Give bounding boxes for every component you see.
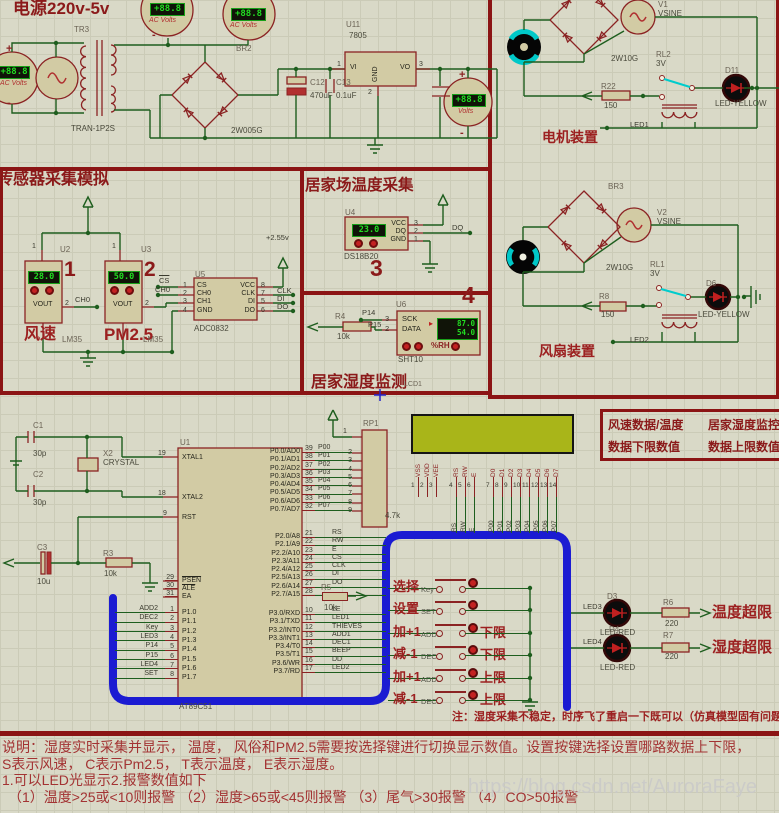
pin-number: 8 xyxy=(344,499,352,507)
pin-number: 12 xyxy=(305,624,313,631)
pin-name: P0.5/AD5 xyxy=(232,489,300,496)
pin-name: P0.6/AD6 xyxy=(232,498,300,505)
alarm-caption-humidity: 湿度超限 xyxy=(712,640,772,655)
pin-number: 34 xyxy=(305,486,313,493)
cap-ref: C2 xyxy=(33,471,43,479)
temp-title: 居家场温度采集 xyxy=(305,178,414,194)
pin-number: 15 xyxy=(305,648,313,655)
push-button-row[interactable]: 减-1 DEC1 下限 xyxy=(390,642,550,664)
pin-number: 1 xyxy=(112,243,116,250)
resistor-ref: R22 xyxy=(601,83,616,91)
resistor-value: 10k xyxy=(337,333,350,341)
pin-number: 1 xyxy=(343,428,347,435)
mcu-pin-row: P2.7/A15 28 xyxy=(232,592,402,600)
net-label: P15 xyxy=(124,652,158,659)
plus-sign: + xyxy=(459,70,465,81)
pin-name: ALE xyxy=(182,585,195,592)
pin-name: P3.0/RXD xyxy=(232,610,300,617)
pin-name: VSS xyxy=(415,454,422,477)
pin-name: P3.6/WR xyxy=(232,660,300,667)
pin-name: D4 xyxy=(526,454,533,477)
pin-number: 38 xyxy=(305,453,313,460)
cap-value: 30p xyxy=(33,450,46,458)
note-line-1: 说明：湿度实时采集并显示， 温度， 风俗和PM2.5需要按选择键进行切换显示数值… xyxy=(2,740,750,754)
fan-caption: 风扇装置 xyxy=(539,344,595,358)
vref-label: +2.55v xyxy=(266,234,289,242)
pin-name: P0.4/AD4 xyxy=(232,481,300,488)
adc-part: ADC0832 xyxy=(194,325,229,333)
pin-name: P3.5/T1 xyxy=(232,651,300,658)
pin-name: P3.7/RD xyxy=(232,668,300,675)
net-label: ADD1 xyxy=(332,631,351,638)
button-terminal xyxy=(459,675,466,682)
voltmeter-display: +88.8 xyxy=(231,8,266,21)
resistor-ref: R6 xyxy=(663,599,673,607)
humidity-top-reading: 87.0 xyxy=(438,319,475,328)
pin-name-vi: VI xyxy=(350,64,357,71)
relay-switches xyxy=(657,76,695,308)
source-value: VSINE xyxy=(658,10,682,18)
net-label: DD xyxy=(332,656,342,663)
pin-name: D0 xyxy=(490,454,497,477)
limit-label: 上限 xyxy=(480,689,506,708)
pin-name: RW xyxy=(462,454,469,477)
minus-sign: - xyxy=(152,30,156,41)
pin-name: P2.2/A10 xyxy=(232,550,300,557)
led-ref: D4 xyxy=(609,626,619,634)
adc-ref: U5 xyxy=(195,271,205,279)
relay-value: 3V xyxy=(656,60,666,68)
led-ref: D3 xyxy=(607,593,617,601)
net-label: P03 xyxy=(515,498,522,532)
pin-name: CH0 xyxy=(197,290,211,297)
button-actuator[interactable] xyxy=(468,645,478,655)
pin-name: VCC xyxy=(386,220,406,227)
transformer xyxy=(81,40,116,116)
pin-name: GND xyxy=(386,236,406,243)
mcu-p1-pins: ADD2 1 P1.0 DEC2 2 P1.1 Key 3 P1.2 LED3 … xyxy=(88,609,198,684)
cap-ref: C12 xyxy=(310,79,325,87)
pin-number: 14 xyxy=(305,640,313,647)
pin-number: 19 xyxy=(158,450,166,457)
relay-ref: RL1 xyxy=(650,261,665,269)
pin-number: 21 xyxy=(305,530,313,537)
push-button-row[interactable]: 加+1 ADD1 下限 xyxy=(390,620,550,642)
mcu-pin-row: 29 PSEN xyxy=(88,577,198,585)
button-plate xyxy=(435,669,466,671)
button-terminal xyxy=(436,608,443,615)
minus-sign: - xyxy=(460,128,464,139)
pin-name: P1.0 xyxy=(182,609,196,616)
mcu-pin-row: P3.7/RD 17 LED2 xyxy=(232,669,402,677)
button-terminal xyxy=(459,653,466,660)
button-label: 加+1 xyxy=(393,621,421,640)
net-label-p15: P15 xyxy=(368,321,381,329)
pin-name: P0.1/AD1 xyxy=(232,456,300,463)
sht10-ref: U6 xyxy=(396,301,406,309)
pin-number: 33 xyxy=(305,495,313,502)
pin-number: 32 xyxy=(305,503,313,510)
pin-number: 13 xyxy=(305,632,313,639)
increment-knob[interactable] xyxy=(354,239,363,248)
net-label: LED3 xyxy=(124,633,158,640)
bridge-value: 2W10G xyxy=(611,55,638,63)
pin-number: 26 xyxy=(305,571,313,578)
power-title: 电源220v-5v xyxy=(13,0,109,17)
push-button-row[interactable]: 减-1 DEC2 上限 xyxy=(390,687,550,709)
button-terminal xyxy=(436,586,443,593)
keypad: 选择 Key 设置 SET 加+1 ADD1 下限 减-1 DEC1 下限 加+… xyxy=(390,575,550,709)
pin-name: P3.4/T0 xyxy=(232,643,300,650)
led-value: LED-YELLOW xyxy=(715,100,767,108)
rh-unit-label: %RH xyxy=(431,342,450,350)
lcd-data-pins: D0 7 P00 D1 8 P01 D2 9 P02 D3 10 P03 D4 … xyxy=(489,453,561,533)
pin-name: P3.2/INT0 xyxy=(232,627,300,634)
pin-number: 7 xyxy=(160,662,174,669)
pin-name: CS xyxy=(197,282,207,289)
led-ref: D11 xyxy=(725,67,739,75)
pin-name: D2 xyxy=(508,454,515,477)
lcd-pin: VEE 3 xyxy=(432,453,441,533)
push-button-row[interactable]: 设置 SET xyxy=(390,597,550,619)
net-label: DEC2 xyxy=(124,614,158,621)
sht10-display: 87.0 54.0 xyxy=(437,318,478,340)
ds18b20-ref: U4 xyxy=(345,209,355,217)
pin-number: 17 xyxy=(305,665,313,672)
mcu-ref: U1 xyxy=(180,439,190,447)
mcu-control-pins: 29 PSEN 30 ALE 31 EA xyxy=(88,577,198,601)
pin-number: 23 xyxy=(305,547,313,554)
pin-name: P1.2 xyxy=(182,628,196,635)
pin-number: 4 xyxy=(344,466,352,474)
pin-name: GND xyxy=(197,307,213,314)
pin-name: EA xyxy=(182,593,191,600)
resistor-ref: R4 xyxy=(335,313,345,321)
pin-number: 2 xyxy=(385,324,389,333)
net-label: P06 xyxy=(542,498,549,532)
pin-number: 2 xyxy=(414,228,418,235)
voltmeter-type: AC Volts xyxy=(149,17,176,24)
limit-label: 下限 xyxy=(480,644,506,663)
pin-number: 9 xyxy=(344,507,352,515)
pullup-resistor xyxy=(322,592,348,601)
lcd-pin: VSS 1 xyxy=(414,453,423,533)
pin-number: 3 xyxy=(344,457,352,465)
net-label: P00 xyxy=(488,498,495,532)
net-label: LED1 xyxy=(332,614,350,621)
note-line-3: 1.可以LED光显示2.报警数值如下 xyxy=(2,773,207,787)
motor-icon xyxy=(507,30,541,64)
button-actuator[interactable] xyxy=(468,578,478,588)
decrement-knob[interactable] xyxy=(369,239,378,248)
decrement-knob[interactable] xyxy=(45,286,54,295)
legend-top-left: 风速数据/温度 xyxy=(608,416,683,433)
increment-knob[interactable] xyxy=(110,286,119,295)
cap-value: 10u xyxy=(37,578,50,586)
pin-name: P2.7/A15 xyxy=(232,591,300,598)
pin-number: 9 xyxy=(504,482,508,489)
respack-pin-numbers: 23456789 xyxy=(344,449,352,515)
button-plate xyxy=(435,579,466,581)
increment-knob[interactable] xyxy=(402,342,411,351)
marker-1: 1 xyxy=(64,259,76,280)
pin-name: P2.4/A12 xyxy=(232,566,300,573)
lcd-pin: D7 14 P07 xyxy=(552,453,561,533)
voltmeter-display: +88.8 xyxy=(452,94,486,107)
net-label: DI xyxy=(332,570,339,577)
net-label-p14: P14 xyxy=(362,309,375,317)
button-actuator[interactable] xyxy=(468,690,478,700)
pin-number: 1 xyxy=(160,606,174,613)
regulator-ref: U11 xyxy=(346,21,360,29)
voltmeter-type: AC Volts xyxy=(230,22,257,29)
legend-bottom-left: 数据下限数值 xyxy=(608,438,680,455)
transformer-ref: TR3 xyxy=(74,26,89,34)
pin-number: 4 xyxy=(160,634,174,641)
bridge-ref: BR3 xyxy=(608,183,624,191)
pin-number: 3 xyxy=(160,625,174,632)
note-line-2: S表示风速， C表示Pm2.5， T表示温度， E表示湿度。 xyxy=(2,757,343,771)
increment-knob[interactable] xyxy=(30,286,39,295)
net-label: ADD2 xyxy=(124,605,158,612)
net-label: P00 xyxy=(318,444,330,451)
led-ref: D6 xyxy=(706,280,716,288)
pin-number: 6 xyxy=(344,482,352,490)
proteus-workspace: 电源220v-5v TR3 TRAN-1P2S +88.8 AC Volts +… xyxy=(0,0,779,813)
pin-number: 22 xyxy=(305,538,313,545)
button-label: 设置 xyxy=(393,598,419,617)
net-label: LED3 xyxy=(583,603,602,611)
pin-name: P1.5 xyxy=(182,656,196,663)
respack-value: 4.7k xyxy=(385,512,400,520)
sht10-pins: 3 SCK 2 DATA xyxy=(385,315,427,335)
pin-number: 2 xyxy=(145,300,149,307)
cap-value: 30p xyxy=(33,499,46,507)
net-label: P02 xyxy=(318,461,330,468)
pin-number: 10 xyxy=(513,482,520,489)
pin-number: 2 xyxy=(65,300,69,307)
pin-name: P0.2/AD2 xyxy=(232,465,300,472)
mcu-pin-row: P0.7/AD7 32 P07 xyxy=(232,507,402,515)
lcd-ref: LCD1 xyxy=(404,381,422,388)
pin-number: 5 xyxy=(261,298,265,305)
pm-display: 50.0 xyxy=(108,271,140,284)
net-label: LED2 xyxy=(332,664,350,671)
pin-number: 1 xyxy=(414,236,418,243)
motor-caption: 电机装置 xyxy=(542,130,598,144)
net-label-dq: DQ xyxy=(452,224,463,232)
pm-sensor-ref: U3 xyxy=(141,246,151,254)
pin-number: 36 xyxy=(305,470,313,477)
voltmeter-type: Volts xyxy=(458,108,473,115)
button-terminal xyxy=(436,697,443,704)
pin-number: 2 xyxy=(368,89,372,96)
voltmeter-display: +88.8 xyxy=(150,3,185,16)
pin-name: D3 xyxy=(517,454,524,477)
pin-name: RS xyxy=(453,454,460,477)
lcd-control-pins: RS 4 RS RW 5 RW E 6 E xyxy=(452,453,479,533)
pin-number: 29 xyxy=(160,574,174,581)
button-actuator[interactable] xyxy=(468,623,478,633)
humidity-bottom-reading: 54.0 xyxy=(438,328,475,337)
pin-number: 14 xyxy=(549,482,556,489)
pin-name: PSEN xyxy=(182,577,201,584)
pin-name-xtal2: XTAL2 xyxy=(182,494,203,501)
adc-right-pins: VCC 8 CLK 7 DI 5 DO 6 xyxy=(225,283,281,316)
legend-top-right: 居家湿度监控 xyxy=(708,416,779,433)
net-label: P05 xyxy=(318,485,330,492)
fan-icon xyxy=(506,240,540,274)
pin-name: DI xyxy=(225,298,255,305)
pin-name: P0.3/AD3 xyxy=(232,473,300,480)
pin-number: 4 xyxy=(449,482,453,489)
decrement-knob[interactable] xyxy=(125,286,134,295)
sht-pin-row: 2 DATA xyxy=(385,325,427,335)
pin-number: 8 xyxy=(160,671,174,678)
ds-pin-row: GND 1 xyxy=(386,237,422,245)
pin-number: 2 xyxy=(344,449,352,457)
pin-number: 25 xyxy=(305,563,313,570)
pin-name: P2.5/A13 xyxy=(232,574,300,581)
coil-net-label: LED2 xyxy=(630,336,649,344)
resistor-value: 10k xyxy=(324,604,337,612)
decrement-knob[interactable] xyxy=(414,342,423,351)
net-label: P05 xyxy=(533,498,540,532)
pin-name-vo: VO xyxy=(400,64,410,71)
net-label: CLK xyxy=(332,562,346,569)
net-label-cs: CS xyxy=(159,277,169,285)
net-label: P03 xyxy=(318,469,330,476)
pin-number: 11 xyxy=(522,482,529,489)
pin-number: 3 xyxy=(419,61,423,68)
pin-number: 3 xyxy=(183,298,187,305)
net-label: P02 xyxy=(506,498,513,532)
resistor-ref: R7 xyxy=(663,632,673,640)
button-label: 减-1 xyxy=(393,688,418,707)
bridge-value: 2W10G xyxy=(606,264,633,272)
net-label: LED4 xyxy=(583,638,602,646)
cap-ref: C3 xyxy=(37,544,47,552)
net-label-ch0: CH0 xyxy=(155,286,170,294)
button-actuator[interactable] xyxy=(468,600,478,610)
voltmeter-type: AC Volts xyxy=(0,80,27,87)
pin-name: P2.6/A14 xyxy=(232,583,300,590)
mcu-pin-row: SET 8 P1.7 xyxy=(88,674,198,683)
source-value: VSINE xyxy=(657,218,681,226)
coil-net-label: LED1 xyxy=(630,121,649,129)
button-terminal xyxy=(436,653,443,660)
source-ref: V2 xyxy=(657,209,667,217)
net-label: P06 xyxy=(318,494,330,501)
net-label: RW xyxy=(460,498,467,532)
pin-name: P3.1/TXD xyxy=(232,618,300,625)
pin-number: 5 xyxy=(458,482,462,489)
net-label: DEC1 xyxy=(332,639,351,646)
marker-4: 4 xyxy=(462,284,475,307)
net-label: RW xyxy=(332,537,344,544)
pin-number: 2 xyxy=(183,290,187,297)
net-label: P07 xyxy=(551,498,558,532)
pin-name: CLK xyxy=(225,290,255,297)
sht10-part: SHT10 xyxy=(398,356,423,364)
pin-number: 30 xyxy=(160,582,174,589)
resistor-ref: R3 xyxy=(103,550,113,558)
pin-number: 1 xyxy=(32,243,36,250)
ds18b20-pins: VCC 3 DQ 2 GND 1 xyxy=(386,221,422,245)
net-label: P14 xyxy=(124,642,158,649)
crystal-value: CRYSTAL xyxy=(103,459,139,467)
net-label: P04 xyxy=(318,477,330,484)
mcu-pin-row: 31 EA xyxy=(88,593,198,601)
pin-name: D1 xyxy=(499,454,506,477)
source-ref: V1 xyxy=(658,1,668,9)
pin-number: 10 xyxy=(305,607,313,614)
push-button-row[interactable]: 加+1 ADD2 上限 xyxy=(390,665,550,687)
push-button-row[interactable]: 选择 Key xyxy=(390,575,550,597)
pin-name-rst: RST xyxy=(182,514,196,521)
pin-number: 31 xyxy=(160,590,174,597)
pm-part: LM35 xyxy=(143,336,163,344)
button-actuator[interactable] xyxy=(468,668,478,678)
transformer-value: TRAN-1P2S xyxy=(71,125,115,133)
pin-name: CH1 xyxy=(197,298,211,305)
pin-name: D6 xyxy=(544,454,551,477)
pin-name-vout: VOUT xyxy=(113,301,132,308)
net-label: DO xyxy=(332,579,343,586)
pin-number: 1 xyxy=(183,282,187,289)
pin-number: 4 xyxy=(183,307,187,314)
pin-number: 35 xyxy=(305,478,313,485)
pin-name: P3.3/INT1 xyxy=(232,635,300,642)
pin-name: P1.6 xyxy=(182,665,196,672)
button-terminal xyxy=(459,586,466,593)
plus-sign: + xyxy=(6,44,12,55)
pin-name: P1.7 xyxy=(182,674,196,681)
pin-number: 7 xyxy=(261,290,265,297)
voltmeter-display: +88.8 xyxy=(0,66,30,79)
lcd-pin: E 6 E xyxy=(470,453,479,533)
adjust-knob[interactable] xyxy=(451,342,460,351)
pin-number: 9 xyxy=(163,510,167,517)
pointer-icon: ▸ xyxy=(429,320,433,328)
resistor-value: 150 xyxy=(601,311,614,319)
net-label-ch0: CH0 xyxy=(75,296,90,304)
net-label: Key xyxy=(124,624,158,631)
cap-ref: C1 xyxy=(33,422,43,430)
net-label: E xyxy=(332,546,337,553)
pin-number: 39 xyxy=(305,445,313,452)
resistor-value: 150 xyxy=(604,102,617,110)
led-icons xyxy=(604,75,749,661)
pin-name: E xyxy=(471,454,478,477)
pin-number: 37 xyxy=(305,462,313,469)
pin-number: 12 xyxy=(531,482,538,489)
button-terminal xyxy=(436,630,443,637)
pin-number: 7 xyxy=(486,482,490,489)
pin-number: 11 xyxy=(305,615,312,622)
legend-bottom-right: 数据上限数值 xyxy=(708,438,779,455)
pin-number: 5 xyxy=(160,643,174,650)
net-label: Key xyxy=(421,585,434,594)
pin-name-vout: VOUT xyxy=(33,301,52,308)
pin-name-gnd: GND xyxy=(372,56,379,82)
pin-number: 6 xyxy=(160,653,174,660)
pin-number: 16 xyxy=(305,657,313,664)
csdn-watermark: https://blog.csdn.net/AuroraFaye xyxy=(468,776,757,799)
net-label: THIEVES xyxy=(332,623,362,630)
pin-name: P0.0/AD0 xyxy=(232,448,300,455)
pin-name: P0.7/AD7 xyxy=(232,506,300,513)
